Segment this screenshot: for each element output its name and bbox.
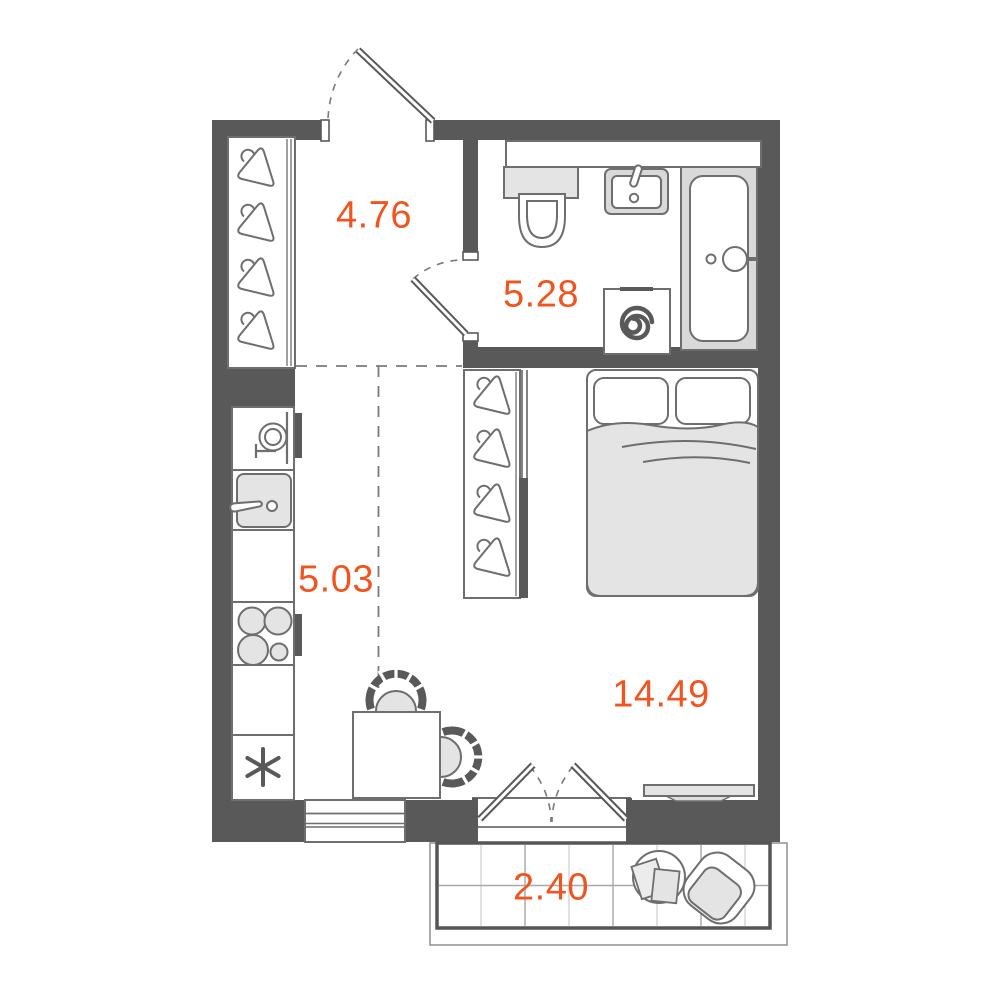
bathroom-shelf [506, 141, 761, 167]
floor-plan: 4.76 5.28 5.03 14.49 2.40 [0, 0, 1000, 1000]
tv-console [644, 785, 754, 801]
area-label-bathroom: 5.28 [503, 274, 579, 317]
dining-set [353, 666, 486, 798]
entrance-door [321, 49, 434, 141]
area-label-balcony: 2.40 [513, 867, 589, 910]
hallway-wardrobe [228, 137, 295, 368]
balcony-table [631, 851, 685, 903]
pillow [594, 378, 668, 424]
bedroom-wardrobe [464, 370, 528, 598]
dining-table [353, 712, 440, 798]
balcony [430, 843, 787, 945]
blanket [587, 422, 758, 596]
living-room [464, 370, 758, 801]
bathroom-door [413, 252, 478, 341]
toilet [504, 167, 578, 247]
zone-divider-lines [296, 366, 462, 688]
kitchen-units [230, 407, 294, 800]
chair [439, 728, 486, 787]
floor-plan-drawing [0, 0, 1000, 1000]
balcony-french-door [472, 765, 632, 843]
area-label-hallway: 4.76 [336, 195, 412, 238]
kitchen-basin [230, 474, 291, 527]
washing-machine [604, 287, 670, 354]
washbasin [605, 164, 668, 214]
chair [367, 666, 426, 713]
area-label-kitchen: 5.03 [298, 559, 374, 602]
pillow [676, 378, 750, 424]
window [305, 800, 405, 842]
area-label-living-room: 14.49 [612, 674, 710, 717]
bathtub [681, 167, 758, 350]
double-bed [587, 370, 758, 596]
